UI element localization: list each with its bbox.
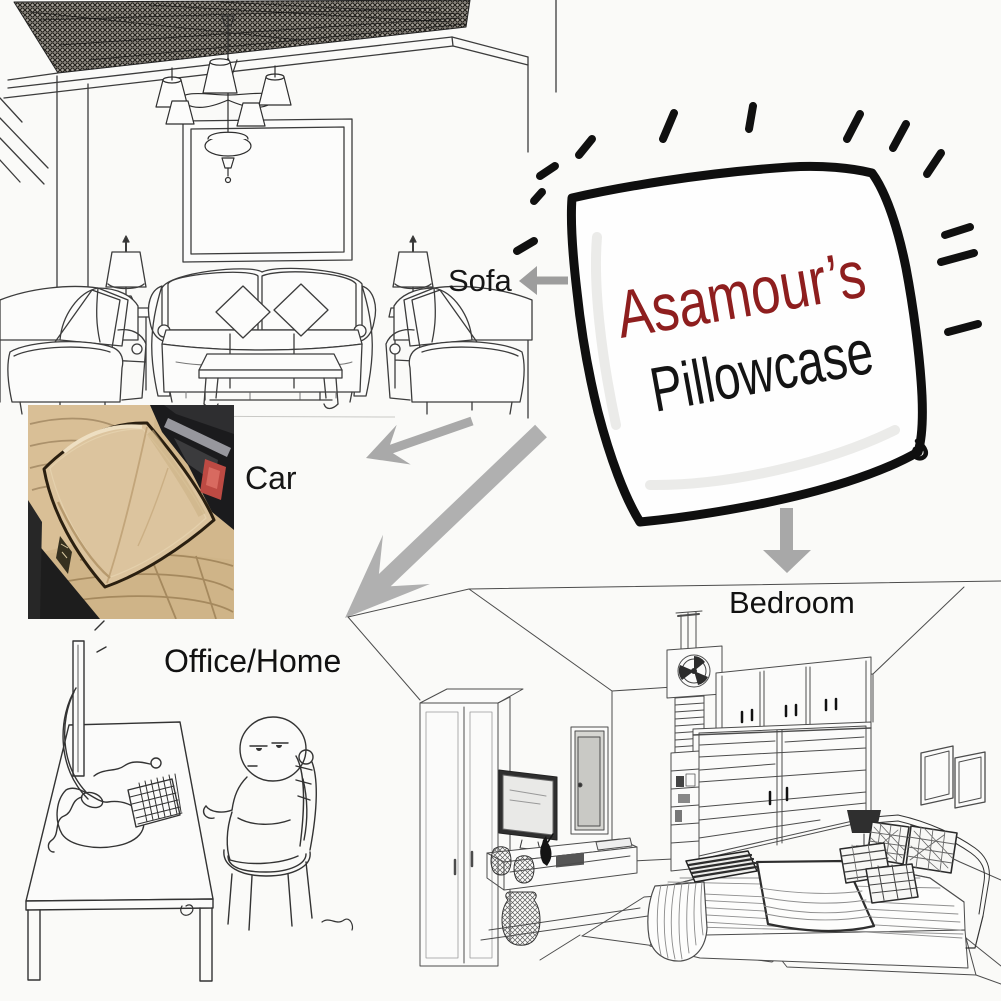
svg-text:Bedroom: Bedroom	[729, 585, 855, 620]
svg-text:Car: Car	[245, 460, 297, 496]
svg-text:Office/Home: Office/Home	[164, 643, 341, 679]
svg-text:Sofa: Sofa	[448, 263, 513, 298]
